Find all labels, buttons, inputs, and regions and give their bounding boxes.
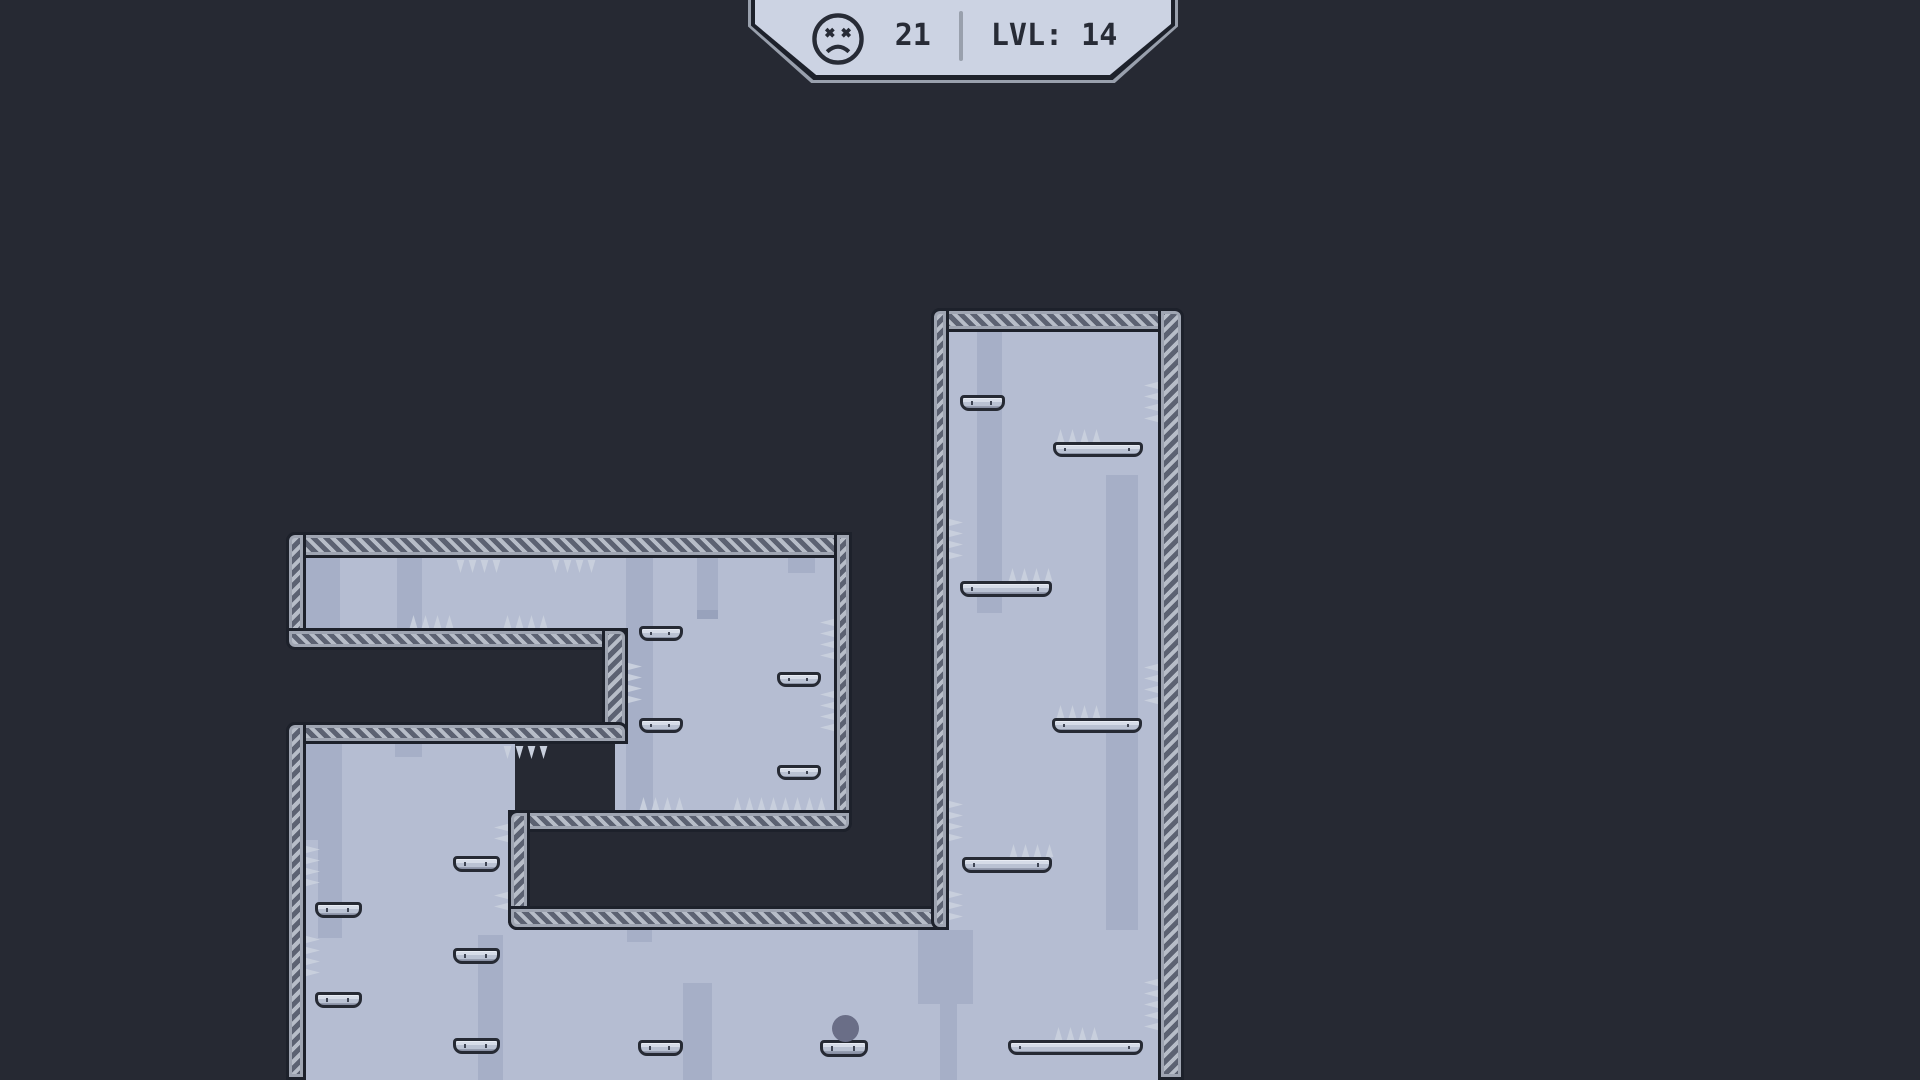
spike-up-icon bbox=[1007, 568, 1018, 581]
spike-right-icon bbox=[306, 968, 320, 977]
background-stripe-decoration bbox=[940, 1004, 957, 1080]
spike-left-icon bbox=[1144, 685, 1158, 694]
maze-wall bbox=[834, 532, 852, 832]
spike-right-icon bbox=[306, 957, 320, 966]
spike-strip bbox=[494, 823, 508, 843]
spike-right-icon bbox=[949, 833, 963, 842]
spike-strip bbox=[949, 890, 963, 921]
maze-wall bbox=[286, 722, 306, 1080]
spike-up-icon bbox=[432, 615, 443, 628]
spike-left-icon bbox=[1144, 663, 1158, 672]
spike-right-icon bbox=[949, 800, 963, 809]
platform bbox=[638, 1040, 683, 1056]
spike-right-icon bbox=[306, 867, 320, 876]
spike-right-icon bbox=[949, 551, 963, 560]
spike-up-icon bbox=[420, 615, 431, 628]
spike-left-icon bbox=[820, 629, 834, 638]
background-stripe-decoration bbox=[1106, 475, 1138, 930]
spike-left-icon bbox=[494, 902, 508, 911]
spike-up-icon bbox=[1043, 568, 1054, 581]
platform bbox=[315, 902, 362, 918]
spike-left-icon bbox=[494, 823, 508, 832]
background-stripe-decoration bbox=[318, 840, 342, 938]
spike-strip bbox=[949, 518, 963, 560]
spike-left-icon bbox=[1144, 1011, 1158, 1020]
spike-up-icon bbox=[1020, 844, 1031, 857]
spike-strip bbox=[550, 560, 597, 573]
spike-right-icon bbox=[628, 695, 642, 704]
platform bbox=[315, 992, 362, 1008]
platform bbox=[453, 948, 500, 964]
spike-left-icon bbox=[1144, 1000, 1158, 1009]
spike-up-icon bbox=[1053, 1027, 1064, 1040]
spike-strip bbox=[1007, 568, 1054, 581]
spike-right-icon bbox=[949, 822, 963, 831]
spike-strip bbox=[502, 746, 549, 759]
platform bbox=[453, 856, 500, 872]
platform bbox=[820, 1040, 868, 1057]
spike-up-icon bbox=[526, 615, 537, 628]
background-stripe-decoration bbox=[395, 744, 422, 757]
background-stripe-decoration bbox=[697, 610, 718, 619]
maze-wall bbox=[286, 532, 852, 558]
spike-strip bbox=[820, 618, 834, 660]
spike-strip bbox=[820, 690, 834, 732]
spike-right-icon bbox=[949, 901, 963, 910]
spike-strip bbox=[408, 615, 455, 628]
level-playfield bbox=[0, 0, 1920, 1080]
spike-up-icon bbox=[804, 797, 815, 810]
spike-left-icon bbox=[1144, 414, 1158, 423]
spike-strip bbox=[1144, 381, 1158, 423]
spike-strip bbox=[306, 935, 320, 977]
background-stripe-decoration bbox=[683, 983, 712, 1080]
spike-down-icon bbox=[514, 746, 525, 759]
spike-right-icon bbox=[628, 662, 642, 671]
spike-strip bbox=[1144, 663, 1158, 705]
platform bbox=[453, 1038, 500, 1054]
spike-left-icon bbox=[1144, 989, 1158, 998]
platform bbox=[639, 626, 683, 641]
spike-up-icon bbox=[502, 615, 513, 628]
spike-left-icon bbox=[1144, 696, 1158, 705]
platform bbox=[777, 765, 821, 780]
spike-up-icon bbox=[1089, 1027, 1100, 1040]
spike-down-icon bbox=[538, 746, 549, 759]
spike-up-icon bbox=[514, 615, 525, 628]
spike-strip bbox=[455, 560, 502, 573]
dead-face-icon bbox=[809, 10, 867, 68]
spike-up-icon bbox=[732, 797, 743, 810]
spike-down-icon bbox=[550, 560, 561, 573]
spike-strip bbox=[1055, 429, 1102, 442]
spike-left-icon bbox=[1144, 1022, 1158, 1031]
spike-strip bbox=[306, 845, 320, 887]
deaths-count: 21 bbox=[895, 18, 931, 53]
spike-left-icon bbox=[1144, 392, 1158, 401]
spike-right-icon bbox=[306, 935, 320, 944]
spike-up-icon bbox=[674, 797, 685, 810]
platform bbox=[1053, 442, 1143, 457]
spike-right-icon bbox=[949, 811, 963, 820]
spike-right-icon bbox=[949, 890, 963, 899]
spike-up-icon bbox=[1055, 705, 1066, 718]
spike-left-icon bbox=[820, 701, 834, 710]
spike-left-icon bbox=[494, 891, 508, 900]
platform bbox=[1008, 1040, 1143, 1055]
spike-left-icon bbox=[820, 690, 834, 699]
spike-down-icon bbox=[562, 560, 573, 573]
spike-left-icon bbox=[1144, 403, 1158, 412]
spike-down-icon bbox=[586, 560, 597, 573]
hud-panel: 21 LVL: 14 bbox=[748, 0, 1178, 83]
spike-strip bbox=[732, 797, 827, 810]
spike-left-icon bbox=[820, 723, 834, 732]
spike-right-icon bbox=[949, 912, 963, 921]
spike-down-icon bbox=[502, 746, 513, 759]
spike-strip bbox=[1008, 844, 1055, 857]
game-screen[interactable]: 21 LVL: 14 bbox=[0, 0, 1920, 1080]
spike-up-icon bbox=[1032, 844, 1043, 857]
platform bbox=[639, 718, 683, 733]
spike-up-icon bbox=[816, 797, 827, 810]
spike-up-icon bbox=[1065, 1027, 1076, 1040]
spike-down-icon bbox=[574, 560, 585, 573]
spike-up-icon bbox=[1008, 844, 1019, 857]
spike-down-icon bbox=[491, 560, 502, 573]
spike-up-icon bbox=[444, 615, 455, 628]
spike-left-icon bbox=[1144, 674, 1158, 683]
spike-up-icon bbox=[792, 797, 803, 810]
spike-left-icon bbox=[820, 618, 834, 627]
level-label: LVL: 14 bbox=[991, 18, 1117, 53]
spike-up-icon bbox=[638, 797, 649, 810]
maze-wall bbox=[1158, 308, 1184, 1080]
maze-wall bbox=[286, 722, 628, 744]
spike-left-icon bbox=[820, 640, 834, 649]
spike-right-icon bbox=[306, 845, 320, 854]
hud-divider bbox=[959, 11, 963, 61]
spike-right-icon bbox=[628, 684, 642, 693]
maze-wall bbox=[931, 308, 1184, 332]
spike-strip bbox=[494, 891, 508, 911]
platform bbox=[960, 395, 1005, 411]
spike-down-icon bbox=[467, 560, 478, 573]
platform bbox=[962, 857, 1052, 873]
spike-left-icon bbox=[1144, 381, 1158, 390]
platform bbox=[960, 581, 1052, 597]
spike-up-icon bbox=[408, 615, 419, 628]
spike-down-icon bbox=[479, 560, 490, 573]
spike-strip bbox=[1144, 978, 1158, 1031]
background-stripe-decoration bbox=[918, 930, 973, 1004]
maze-wall bbox=[508, 810, 852, 832]
spike-up-icon bbox=[650, 797, 661, 810]
background-stripe-decoration bbox=[627, 928, 652, 942]
spike-up-icon bbox=[662, 797, 673, 810]
spike-up-icon bbox=[768, 797, 779, 810]
spike-left-icon bbox=[1144, 978, 1158, 987]
spike-strip bbox=[628, 662, 642, 704]
spike-up-icon bbox=[1091, 429, 1102, 442]
spike-up-icon bbox=[780, 797, 791, 810]
spike-up-icon bbox=[1031, 568, 1042, 581]
background-stripe-decoration bbox=[306, 558, 340, 628]
spike-left-icon bbox=[820, 712, 834, 721]
spike-down-icon bbox=[526, 746, 537, 759]
spike-up-icon bbox=[1044, 844, 1055, 857]
player-character bbox=[832, 1015, 859, 1042]
spike-up-icon bbox=[1067, 705, 1078, 718]
spike-up-icon bbox=[1077, 1027, 1088, 1040]
spike-up-icon bbox=[1019, 568, 1030, 581]
spike-right-icon bbox=[306, 856, 320, 865]
background-stripe-decoration bbox=[306, 744, 342, 840]
spike-up-icon bbox=[538, 615, 549, 628]
spike-up-icon bbox=[756, 797, 767, 810]
spike-up-icon bbox=[744, 797, 755, 810]
spike-strip bbox=[949, 800, 963, 842]
spike-left-icon bbox=[820, 651, 834, 660]
spike-right-icon bbox=[628, 673, 642, 682]
spike-down-icon bbox=[455, 560, 466, 573]
spike-right-icon bbox=[949, 529, 963, 538]
spike-up-icon bbox=[1079, 705, 1090, 718]
maze-wall bbox=[286, 628, 628, 650]
platform bbox=[1052, 718, 1142, 733]
spike-right-icon bbox=[949, 540, 963, 549]
spike-strip bbox=[502, 615, 549, 628]
background-stripe-decoration bbox=[788, 558, 815, 573]
spike-right-icon bbox=[949, 518, 963, 527]
background-stripe-decoration bbox=[977, 332, 1002, 613]
maze-wall bbox=[931, 308, 949, 930]
spike-strip bbox=[1053, 1027, 1100, 1040]
spike-right-icon bbox=[306, 946, 320, 955]
hud-content: 21 LVL: 14 bbox=[748, 0, 1178, 71]
maze-wall bbox=[508, 906, 949, 930]
spike-up-icon bbox=[1067, 429, 1078, 442]
spike-up-icon bbox=[1079, 429, 1090, 442]
spike-strip bbox=[1055, 705, 1102, 718]
platform bbox=[777, 672, 821, 687]
spike-right-icon bbox=[306, 878, 320, 887]
spike-up-icon bbox=[1091, 705, 1102, 718]
background-stripe-decoration bbox=[697, 558, 718, 610]
spike-strip bbox=[638, 797, 685, 810]
spike-up-icon bbox=[1055, 429, 1066, 442]
spike-left-icon bbox=[494, 834, 508, 843]
